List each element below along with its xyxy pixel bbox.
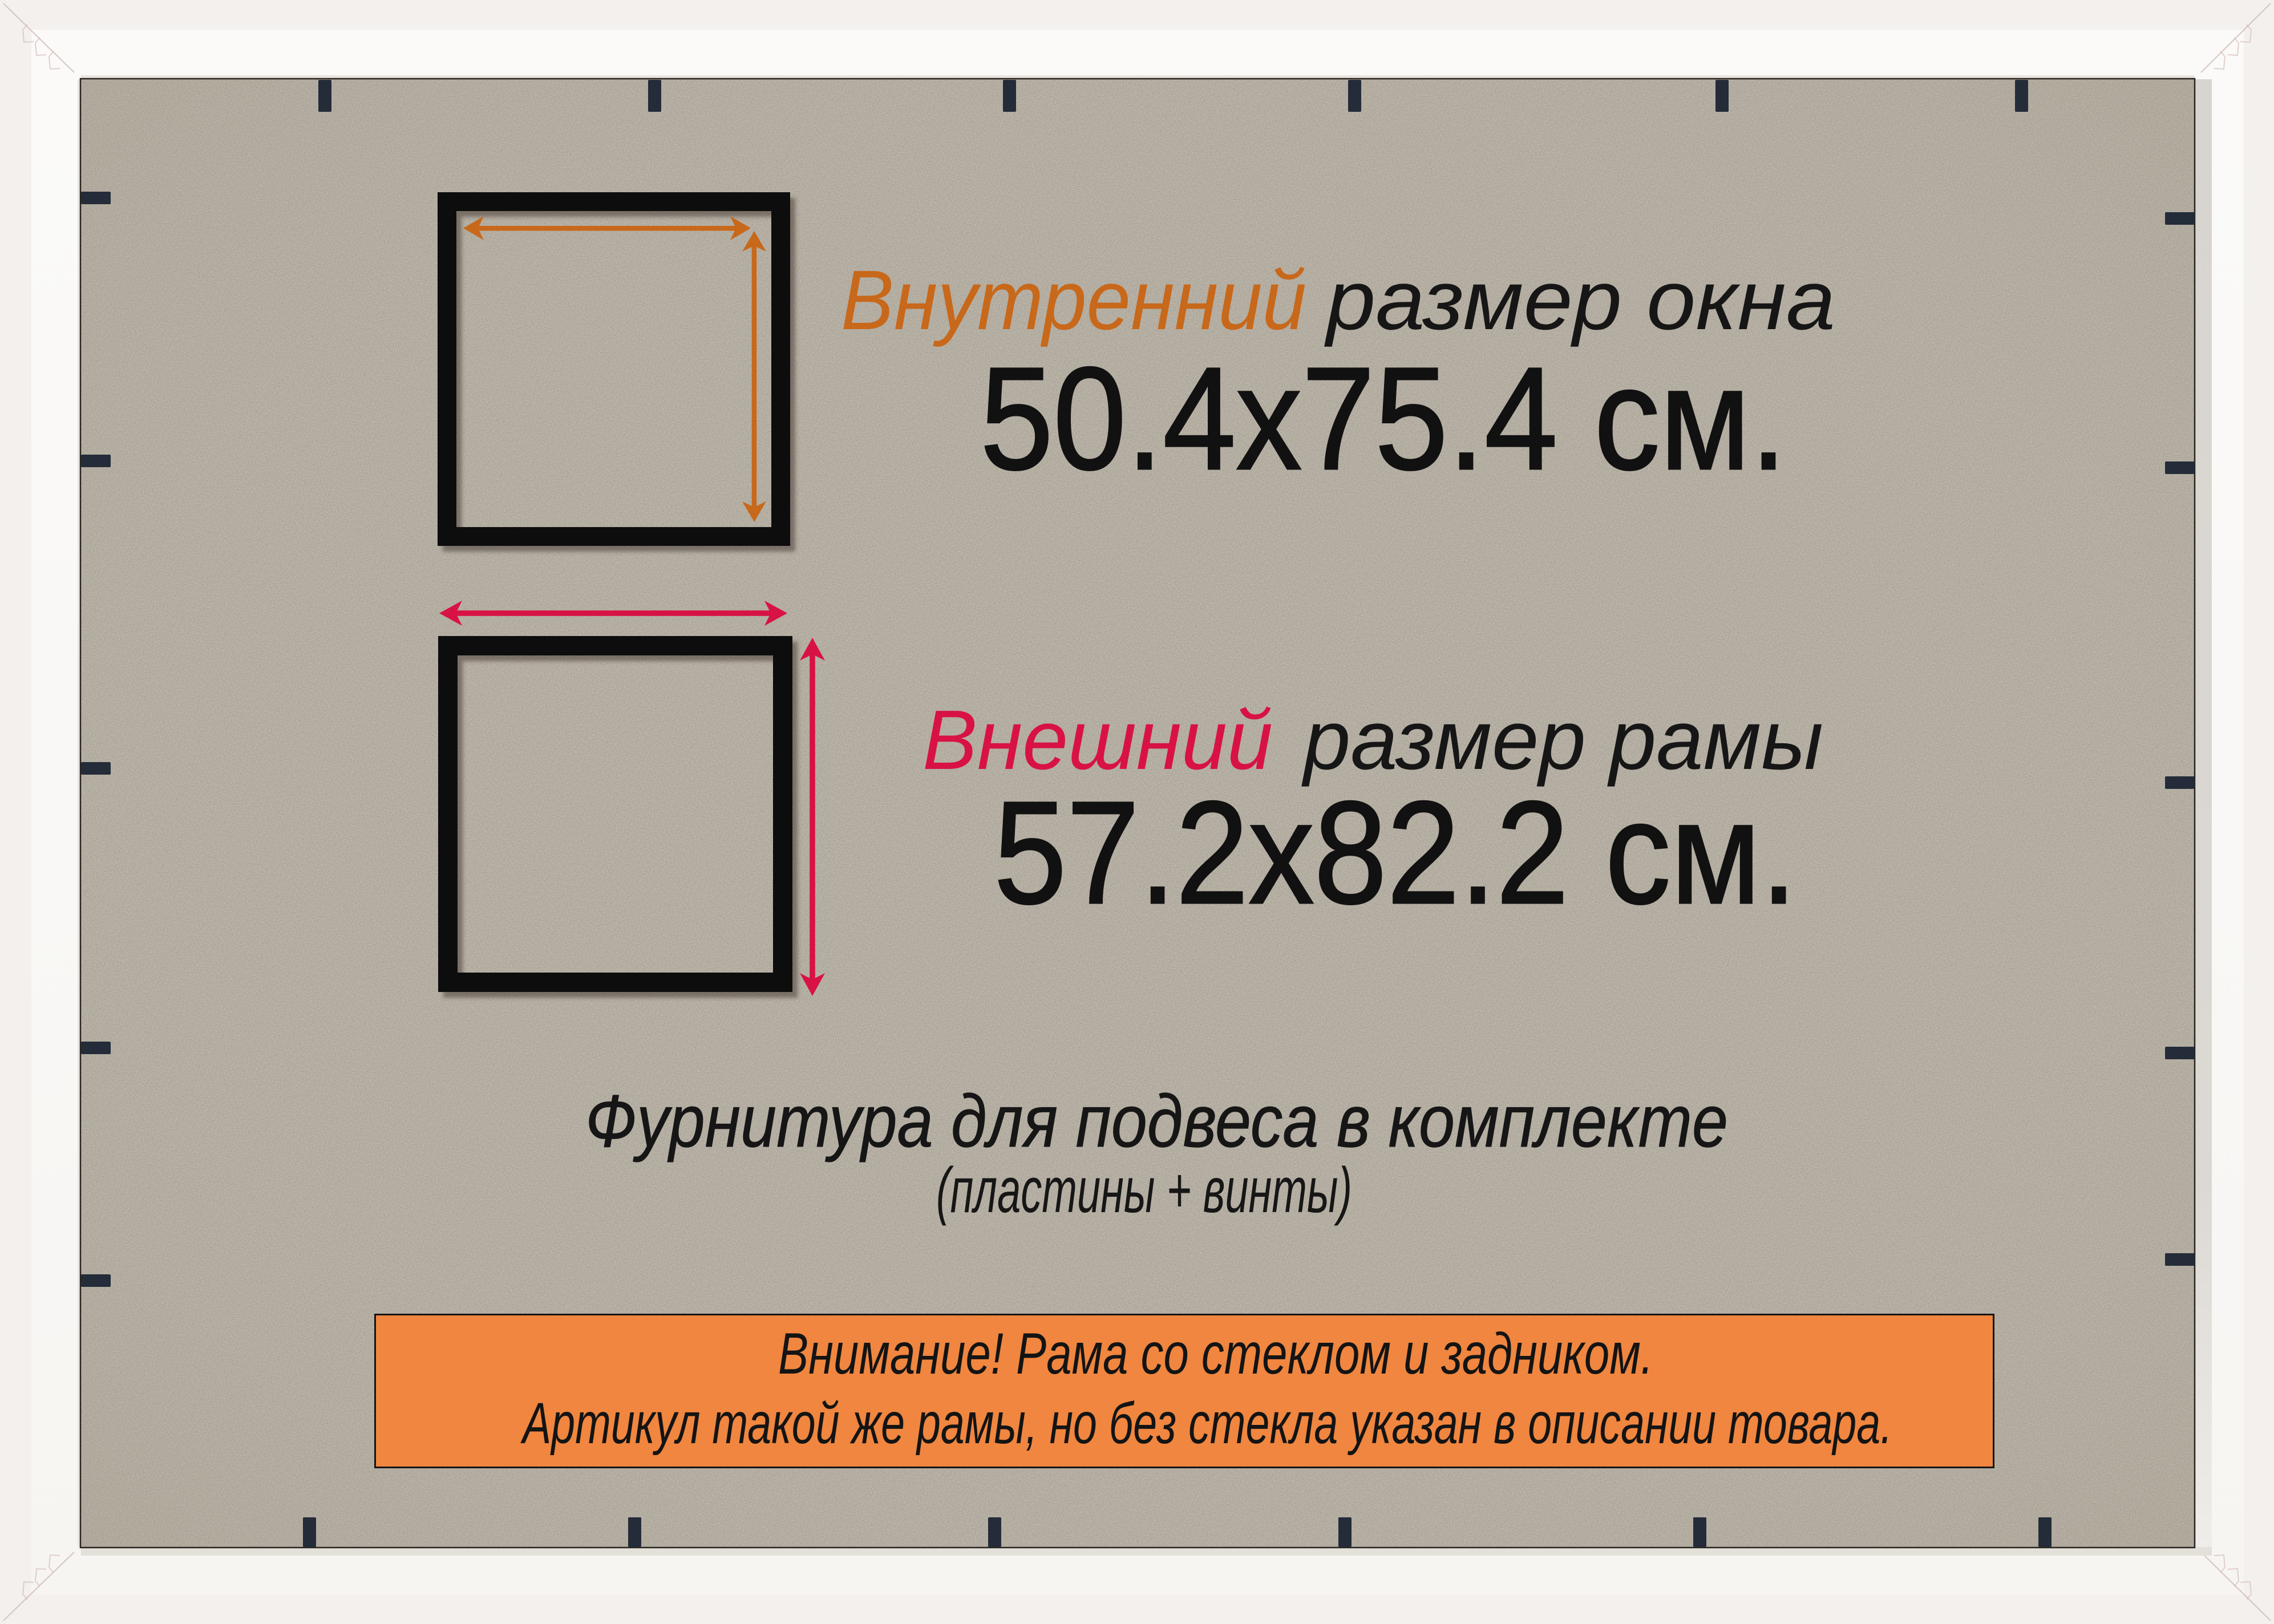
svg-text:57.2x82.2 см.: 57.2x82.2 см. bbox=[994, 771, 1797, 934]
svg-text:размер окна: размер окна bbox=[1324, 253, 1835, 347]
svg-text:Внутренний: Внутренний bbox=[841, 253, 1306, 347]
svg-text:(пластины + винты): (пластины + винты) bbox=[936, 1155, 1352, 1226]
svg-text:50.4x75.4 см.: 50.4x75.4 см. bbox=[980, 337, 1787, 500]
svg-text:Внимание! Рама со стеклом и за: Внимание! Рама со стеклом и задником. bbox=[778, 1321, 1653, 1386]
svg-text:Артикул такой же рамы, но без: Артикул такой же рамы, но без стекла ука… bbox=[520, 1391, 1892, 1456]
svg-text:Фурнитура для подвеса в компле: Фурнитура для подвеса в комплекте bbox=[585, 1079, 1728, 1163]
